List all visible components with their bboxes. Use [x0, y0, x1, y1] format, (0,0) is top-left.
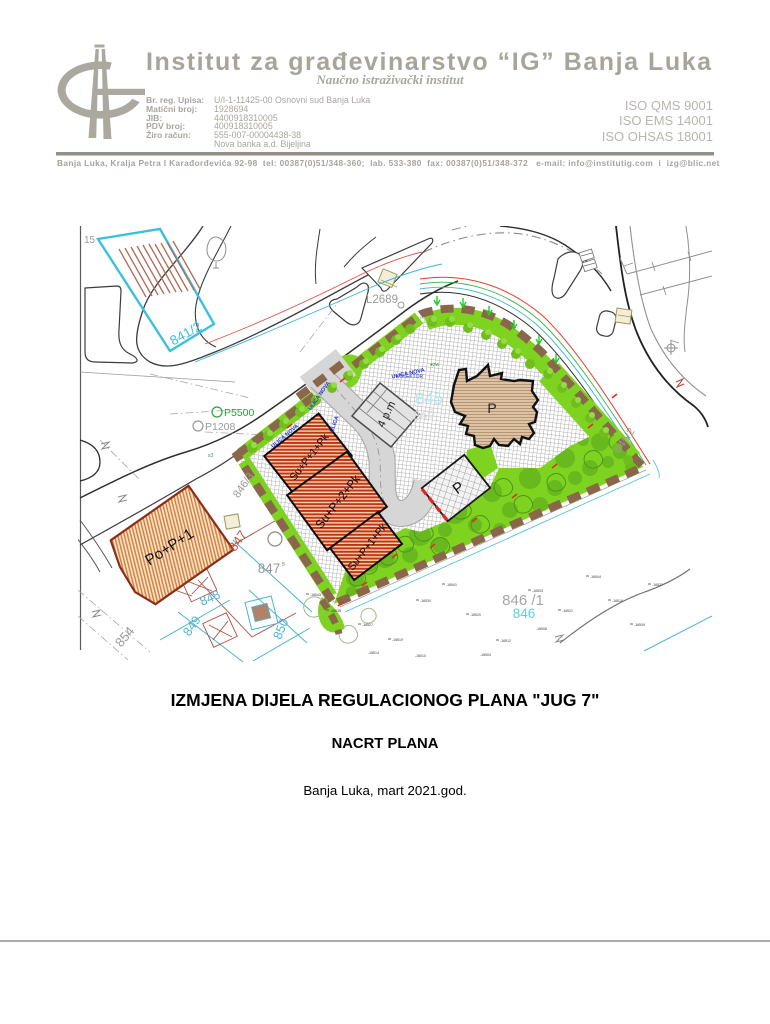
svg-text:-16512: -16512 [500, 639, 511, 643]
svg-text:L2689: L2689 [366, 294, 398, 306]
svg-text:-16508: -16508 [536, 627, 547, 631]
svg-text:P: P [487, 400, 496, 416]
svg-text:-16530: -16530 [420, 599, 431, 603]
svg-text:847: 847 [258, 561, 281, 576]
svg-text:848: 848 [198, 587, 223, 608]
svg-text:-16533: -16533 [532, 589, 543, 593]
svg-text:s3: s3 [208, 453, 214, 459]
svg-text:15: 15 [84, 235, 96, 246]
svg-text:KOLEKTOR: KOLEKTOR [396, 374, 424, 380]
svg-text:-16527: -16527 [652, 583, 663, 587]
svg-text:5: 5 [282, 562, 285, 568]
svg-text:-16519: -16519 [392, 638, 403, 642]
svg-text:-16538: -16538 [330, 609, 341, 613]
svg-text:●zw: ●zw [430, 362, 440, 368]
svg-text:-16521: -16521 [562, 609, 573, 613]
svg-text:-16514: -16514 [368, 651, 379, 655]
svg-text:846: 846 [513, 606, 536, 621]
svg-text:P5500: P5500 [224, 407, 255, 419]
svg-text:-16516: -16516 [612, 599, 623, 603]
svg-text:-16510: -16510 [415, 654, 426, 658]
svg-text:841/2: 841/2 [167, 319, 204, 349]
svg-text:P1208: P1208 [205, 421, 236, 433]
svg-text:-16543: -16543 [310, 593, 321, 597]
svg-text:-16541: -16541 [446, 583, 457, 587]
svg-text:-16504: -16504 [480, 653, 491, 657]
svg-text:-16509: -16509 [634, 623, 645, 627]
svg-text:-16544: -16544 [590, 575, 601, 579]
svg-text:-16527: -16527 [362, 623, 373, 627]
svg-text:-16520: -16520 [470, 613, 481, 617]
svg-text:850: 850 [271, 617, 292, 642]
svg-text:854: 854 [112, 624, 137, 650]
